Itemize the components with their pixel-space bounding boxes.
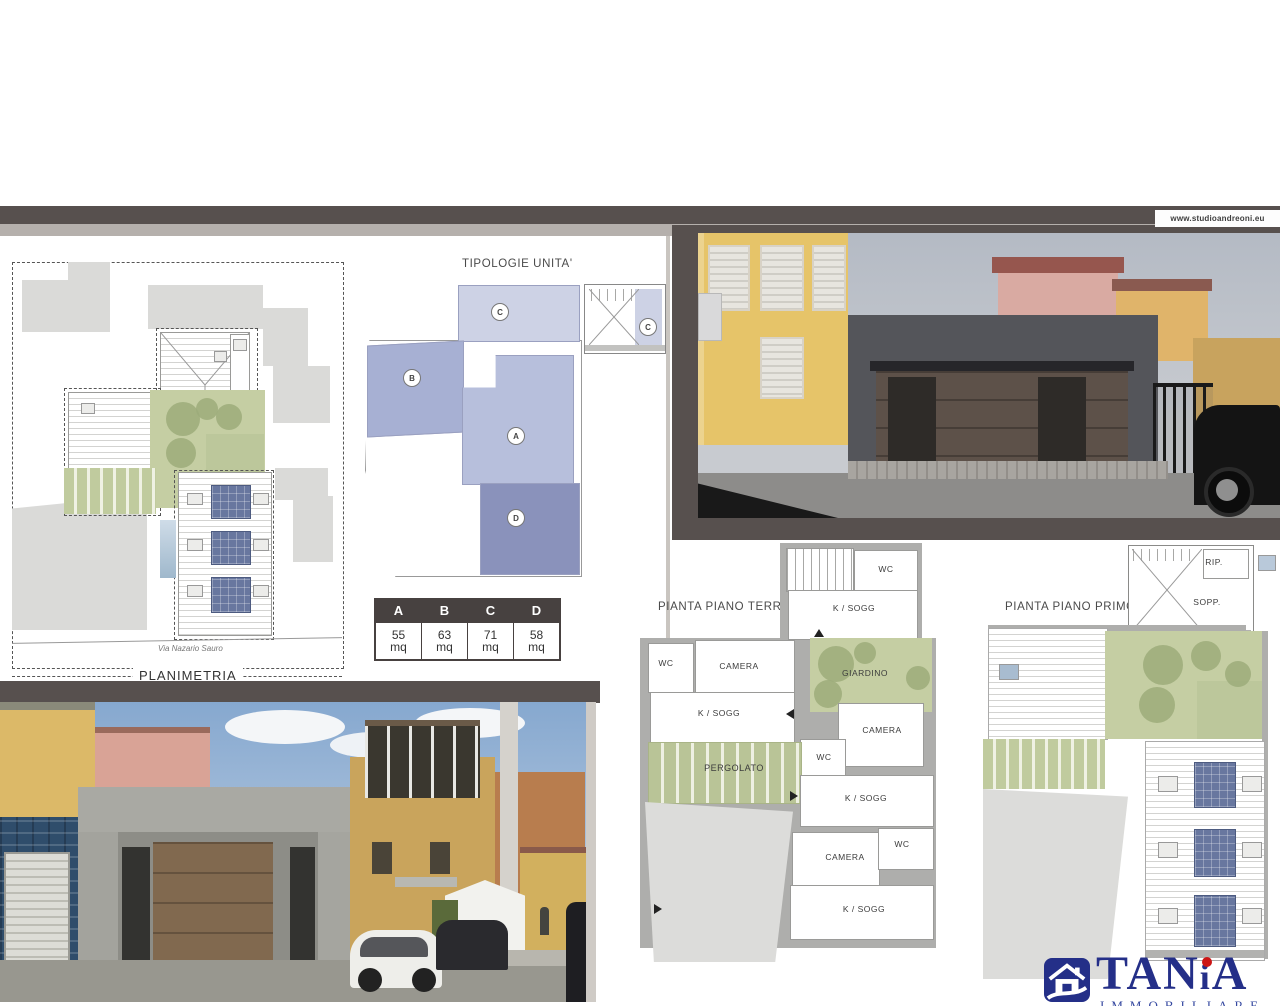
skylight xyxy=(1242,842,1262,858)
house-icon xyxy=(1044,958,1090,1002)
unit-letter-badge: C xyxy=(491,303,509,321)
room-label: WC xyxy=(878,564,893,574)
logo-house-box xyxy=(1044,958,1090,1002)
photo2-top-band xyxy=(0,681,600,703)
table-header-row: A B C D xyxy=(376,600,559,622)
entrance-arrow xyxy=(814,629,824,637)
lap-pool xyxy=(160,520,176,578)
entrance-arrow xyxy=(786,709,794,719)
room-ksogg xyxy=(650,692,795,748)
pergola-area xyxy=(64,468,156,514)
entrance-canopy xyxy=(870,361,1134,371)
logo-wordmark: TANiA xyxy=(1096,946,1248,1001)
frame-band-dark xyxy=(0,206,1280,224)
logo-letter-i: i xyxy=(1200,956,1212,998)
room-camera xyxy=(838,703,924,767)
table-value-cell: 58mq xyxy=(514,622,559,659)
neighbor-building xyxy=(293,496,333,562)
car-windows xyxy=(360,937,428,957)
tree xyxy=(216,404,242,430)
stair-unit-base xyxy=(585,345,665,351)
render-photo-street xyxy=(0,681,600,1003)
unit-letter-badge: D xyxy=(507,509,525,527)
logo-letter-a: A xyxy=(1212,946,1249,1001)
table-value-cell: 55mq xyxy=(376,622,422,659)
studio-watermark: www.studioandreoni.eu xyxy=(1155,210,1280,227)
pink-house-roof xyxy=(992,257,1124,273)
entrance-arrow xyxy=(790,791,798,801)
render-photo-front xyxy=(672,225,1280,540)
pedestrian xyxy=(540,907,549,935)
tree xyxy=(854,642,876,664)
typology-unit-b xyxy=(367,340,464,437)
skylight xyxy=(81,403,95,414)
flat-roof-left xyxy=(68,392,155,470)
stair-cross xyxy=(589,289,639,345)
rooftop-loggia xyxy=(365,720,480,798)
pergolato-area xyxy=(648,742,802,804)
car-wheel xyxy=(412,968,436,992)
room-label: WC xyxy=(894,839,909,849)
area-unit: mq xyxy=(482,641,499,653)
room-label: WC xyxy=(816,752,831,762)
pergola-roof xyxy=(983,739,1105,789)
area-unit: mq xyxy=(390,641,407,653)
tree xyxy=(1191,641,1221,671)
dark-parked-car xyxy=(436,920,508,970)
table-header-cell: A xyxy=(376,600,422,622)
cloud xyxy=(225,710,345,744)
skylight xyxy=(253,585,269,597)
skylight xyxy=(253,539,269,551)
room-label: RIP. xyxy=(1205,557,1222,567)
skylight xyxy=(187,585,203,597)
skylight xyxy=(999,664,1019,680)
typology-unit-c xyxy=(458,285,580,342)
table-value-cell: 71mq xyxy=(468,622,514,659)
area-unit: mq xyxy=(436,641,453,653)
solar-panel xyxy=(1194,762,1236,808)
balcony xyxy=(395,877,457,887)
agency-logo: TANiA IMMOBILIARE xyxy=(1044,952,1280,1006)
stair-unit-lavender xyxy=(635,289,662,345)
tree xyxy=(166,402,200,436)
window-shutter xyxy=(760,245,804,311)
flat-roof xyxy=(988,628,1108,740)
room-label: CAMERA xyxy=(825,852,864,862)
cobble-strip xyxy=(848,461,1168,479)
neighbor-building xyxy=(273,366,330,423)
logo-subtitle: IMMOBILIARE xyxy=(1100,998,1265,1006)
table-header-cell: B xyxy=(422,600,468,622)
skylight xyxy=(233,339,247,351)
room-label: K / SOGG xyxy=(833,603,875,613)
room-label: PERGOLATO xyxy=(704,763,764,773)
room-wc xyxy=(648,643,694,693)
photo2-right-edge xyxy=(586,702,596,1002)
room-label: GIARDINO xyxy=(842,668,888,678)
neighbor-building xyxy=(22,280,110,332)
street-label: Via Nazario Sauro xyxy=(158,644,223,653)
site-plan: Via Nazario Sauro PLANIMETRIA xyxy=(8,252,348,682)
logo-letters-tan: TAN xyxy=(1096,946,1200,1001)
roof-garden-dark xyxy=(1197,681,1262,739)
room-label: K / SOGG xyxy=(845,793,887,803)
photo2-scene xyxy=(0,702,586,1002)
skylight xyxy=(1242,908,1262,924)
solar-panel xyxy=(1194,829,1236,877)
solar-roof xyxy=(1145,741,1265,961)
table-value-row: 55mq 63mq 71mq 58mq xyxy=(376,622,559,659)
table-value-cell: 63mq xyxy=(422,622,468,659)
tree xyxy=(1139,687,1175,723)
plan-terra: WC K / SOGG WC CAMERA K / SOGG GIARDINO … xyxy=(640,543,936,967)
typology-unit-d xyxy=(480,483,580,575)
staircase xyxy=(786,548,854,592)
room-label: CAMERA xyxy=(719,661,758,671)
room-ksogg xyxy=(788,590,918,640)
car-wheel-rim xyxy=(1216,479,1238,501)
table-header-cell: D xyxy=(514,600,559,622)
neighbor-building xyxy=(148,285,263,329)
window-shutter xyxy=(760,337,804,399)
skylight xyxy=(187,493,203,505)
solar-roof-building xyxy=(178,472,272,636)
stair-cross xyxy=(1132,549,1202,631)
roof-garden xyxy=(1105,631,1262,739)
room-label: SOPP. xyxy=(1193,597,1220,607)
paved-area xyxy=(645,802,793,962)
balcony xyxy=(698,293,722,341)
room-label: WC xyxy=(658,658,673,668)
neighbor-building xyxy=(68,262,110,284)
skylight xyxy=(1158,908,1178,924)
skylight xyxy=(253,493,269,505)
photo1-scene xyxy=(698,233,1280,518)
house-window xyxy=(372,842,392,874)
window-shutter xyxy=(812,245,846,311)
skylight xyxy=(187,539,203,551)
entrance-arrow xyxy=(654,904,662,914)
brochure-page: Via Nazario Sauro PLANIMETRIA TIPOLOGIE … xyxy=(0,0,1280,1006)
typologies-title: TIPOLOGIE UNITA' xyxy=(462,258,573,270)
tree xyxy=(166,438,196,468)
unit-letter-badge: B xyxy=(403,369,421,387)
area-unit: mq xyxy=(528,641,545,653)
tree xyxy=(1143,645,1183,685)
table-header-cell: C xyxy=(468,600,514,622)
neighbor-building xyxy=(263,308,308,366)
solar-panel xyxy=(211,531,251,565)
dark-car-sliver xyxy=(566,902,586,1002)
skylight xyxy=(1158,842,1178,858)
skylight xyxy=(1258,555,1276,571)
skylight xyxy=(214,351,227,362)
unit-area-table: A B C D 55mq 63mq 71mq 58mq xyxy=(374,598,561,661)
stair-unit-plan xyxy=(584,284,666,354)
solar-panel xyxy=(211,577,251,613)
car-wheel xyxy=(358,968,382,992)
skylight xyxy=(1242,776,1262,792)
solar-panel xyxy=(211,485,251,519)
tree xyxy=(906,666,930,690)
skylight xyxy=(1158,776,1178,792)
room-label: K / SOGG xyxy=(843,904,885,914)
plan-primo: RIP. SOPP. xyxy=(983,543,1280,1006)
back-house-roof xyxy=(1112,279,1212,291)
tree xyxy=(196,398,218,420)
room-wc xyxy=(878,828,934,870)
unit-letter-badge: C xyxy=(639,318,657,336)
tree xyxy=(1225,661,1251,687)
unit-letter-badge: A xyxy=(507,427,525,445)
room-label: K / SOGG xyxy=(698,708,740,718)
room-label: CAMERA xyxy=(862,725,901,735)
house-window xyxy=(430,842,450,874)
solar-panel xyxy=(1194,895,1236,947)
